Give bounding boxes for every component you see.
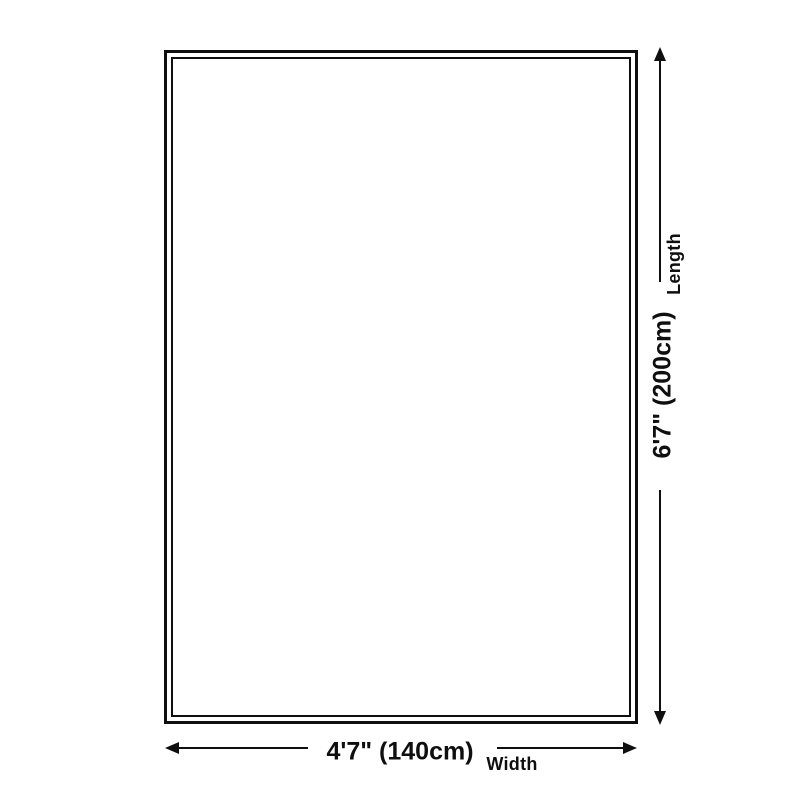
- length-arrow-down-icon: [654, 711, 666, 725]
- product-inner-border: [171, 57, 631, 717]
- size-diagram: 4'7" (140cm) Width Length 6'7" (200cm): [0, 0, 800, 800]
- length-dimension-line-bottom: [659, 490, 661, 713]
- length-dimension-label: Length: [665, 233, 683, 295]
- width-dimension-line-left: [178, 747, 308, 749]
- length-dimension-value: 6'7" (200cm): [651, 311, 676, 458]
- length-arrow-up-icon: [654, 47, 666, 61]
- product-outline: [164, 50, 638, 724]
- width-arrow-left-icon: [165, 742, 179, 754]
- width-dimension-label: Width: [486, 755, 537, 773]
- width-arrow-right-icon: [623, 742, 637, 754]
- length-dimension-line-top: [659, 60, 661, 282]
- width-dimension-line-right: [497, 747, 624, 749]
- width-dimension-value: 4'7" (140cm): [326, 740, 473, 765]
